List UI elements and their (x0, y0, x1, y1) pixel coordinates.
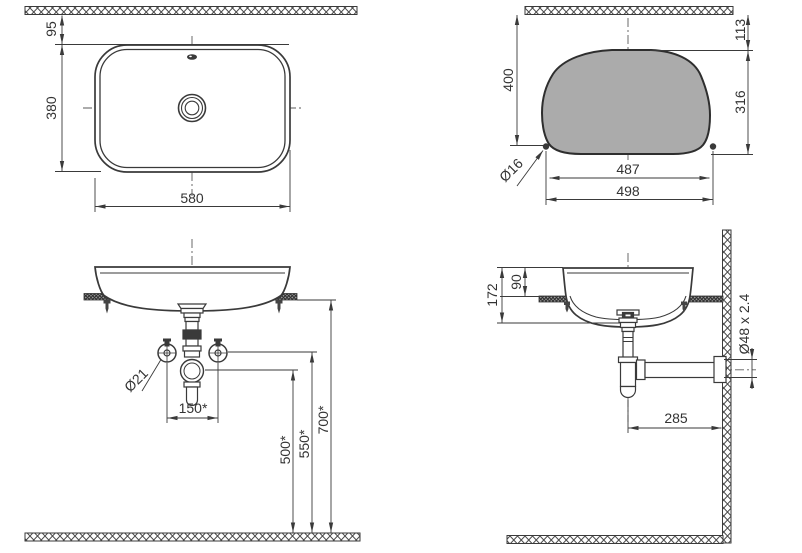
dim-cutout-height: 316 (732, 90, 748, 114)
dim-tap-spacing: 150* (179, 400, 208, 416)
fixing-screw-left (104, 300, 111, 314)
overflow-hole (187, 54, 197, 60)
dim-basin-height: 172 (484, 283, 500, 307)
dim-rim-above-counter: 90 (508, 274, 524, 290)
fixing-screw-right (276, 300, 283, 314)
floor-section (507, 536, 723, 544)
cutout-template-view: 400 113 316 Ø16 487 498 (496, 7, 753, 206)
wall-section (525, 7, 733, 15)
front-elevation-view: Ø21 150* 500* 550* 700* (25, 239, 360, 541)
dim-width-outer: 498 (616, 183, 640, 199)
floor-section (25, 533, 360, 541)
dim-waste-pipe: Ø48 x 2.4 (736, 293, 752, 354)
drain-trap-assembly (617, 310, 726, 398)
basin-inner-rim (100, 50, 285, 168)
overflow-highlight (189, 56, 192, 58)
drawing-svg: 95 380 580 400 113 316 Ø16 487 498 (0, 0, 802, 553)
dim-wall-offset: 95 (43, 21, 59, 37)
fixing-hole-right (710, 143, 716, 149)
installation-drawing: 95 380 580 400 113 316 Ø16 487 498 (0, 0, 802, 553)
dim-counter-height: 700* (315, 405, 331, 434)
fixing-hole-left (543, 143, 549, 149)
dim-depth: 380 (43, 96, 59, 120)
dim-wall-to-base: 400 (500, 68, 516, 92)
basin-footprint (542, 50, 710, 154)
side-elevation-view: 172 90 Ø48 x 2.4 285 (484, 230, 757, 544)
dim-supply-height: 550* (296, 429, 312, 458)
dim-width-inner: 487 (616, 161, 640, 177)
dim-wall-to-top: 113 (732, 19, 748, 42)
wall-section (25, 7, 357, 15)
supply-fitting-right (209, 339, 227, 363)
drain-trap-assembly (178, 304, 206, 406)
top-view: 95 380 580 (25, 7, 357, 213)
supply-fitting-left (158, 339, 176, 363)
dim-trap-outlet-height: 500* (277, 435, 293, 464)
dim-drain-to-wall: 285 (664, 410, 688, 426)
dim-width: 580 (180, 190, 204, 206)
wall-section (723, 230, 732, 543)
dim-supply-diameter: Ø21 (121, 365, 151, 395)
dim-hole-diameter: Ø16 (496, 155, 526, 185)
